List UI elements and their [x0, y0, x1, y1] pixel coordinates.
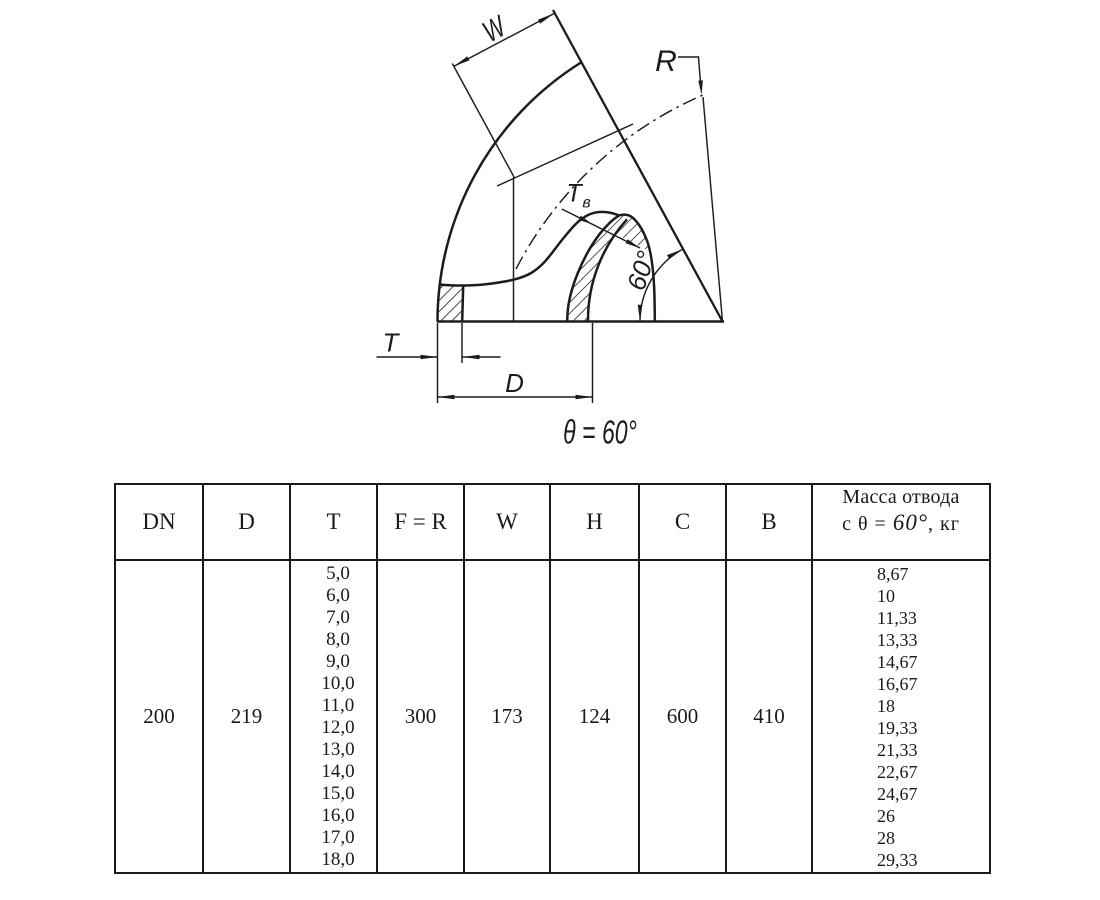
svg-text:R: R	[655, 45, 677, 78]
svg-text:θ = 60°: θ = 60°	[563, 415, 637, 452]
svg-text:W: W	[477, 8, 513, 49]
svg-text:T: T	[383, 328, 401, 358]
svg-text:в: в	[582, 195, 590, 212]
svg-text:D: D	[505, 368, 524, 398]
svg-text:T: T	[566, 180, 583, 208]
